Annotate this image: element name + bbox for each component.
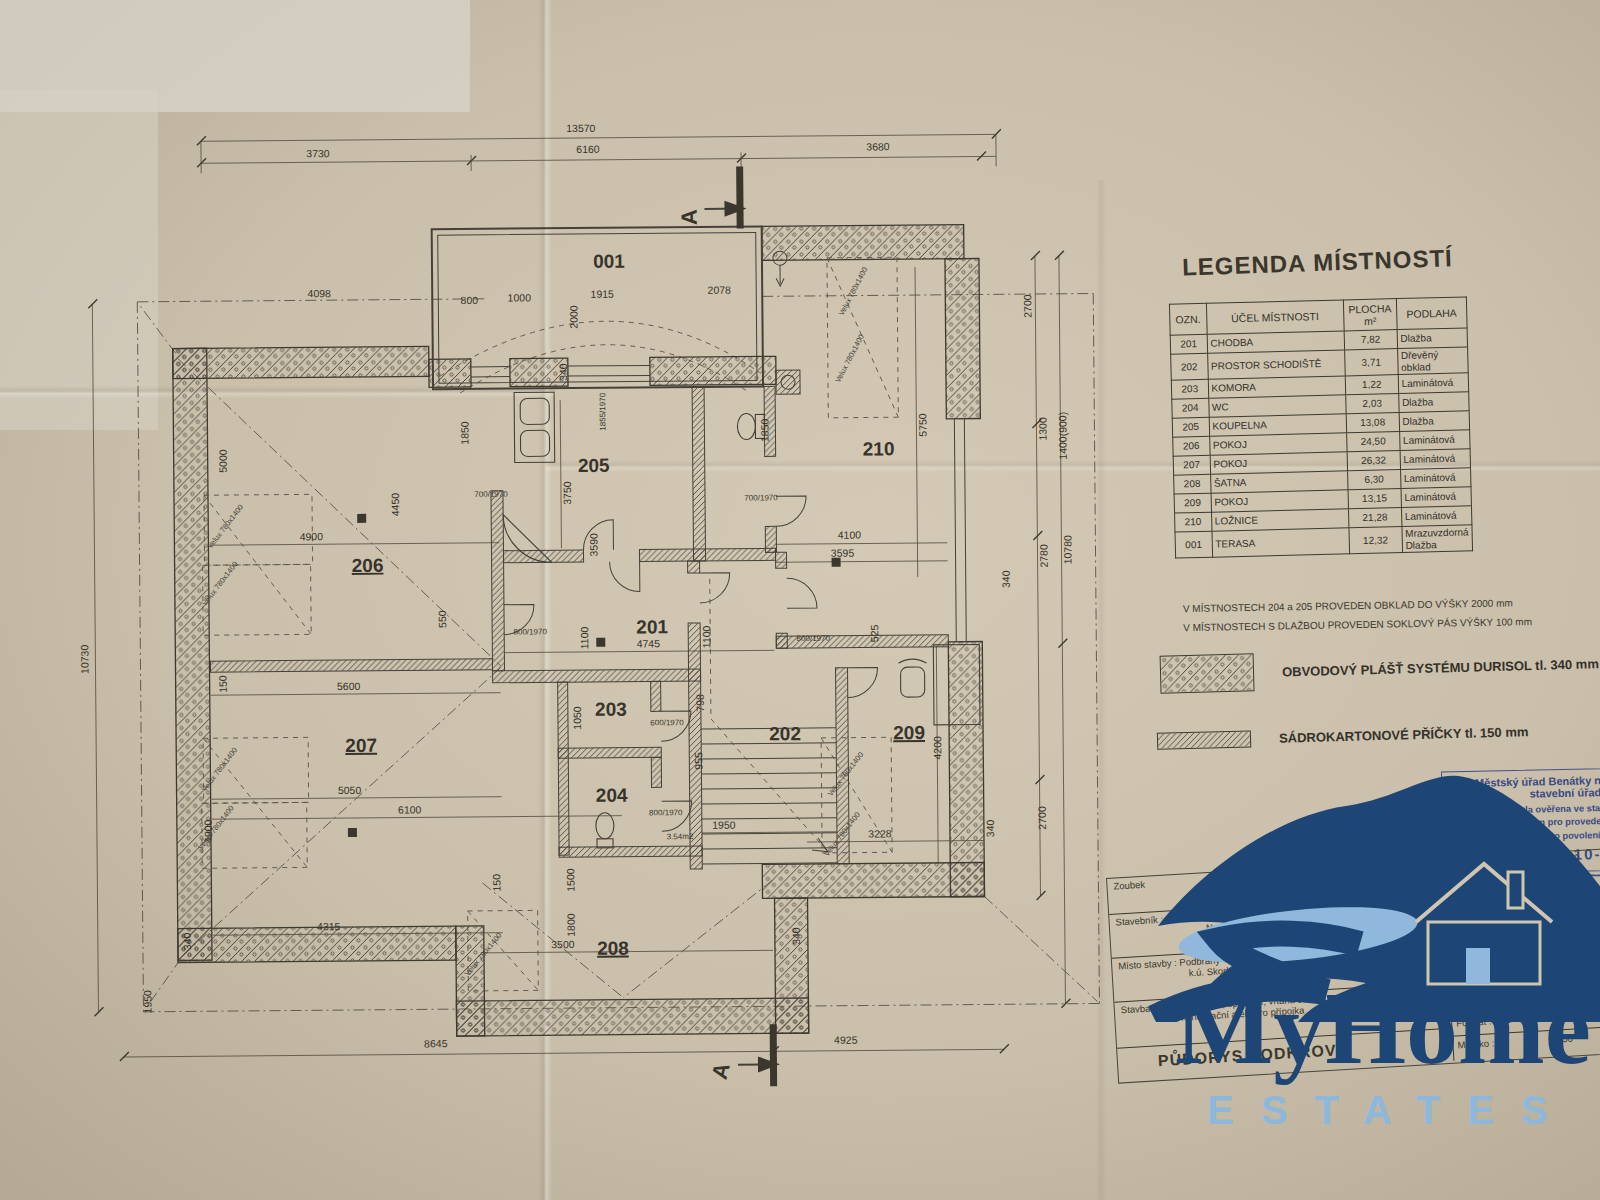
dimension-label: 800/1970 — [649, 808, 683, 817]
skylight-label: Velux 780x1400 — [833, 333, 866, 385]
dimension-label: 1500 — [564, 868, 576, 892]
dimension-label: 6100 — [398, 803, 422, 815]
dimension-label: 340 — [790, 927, 802, 945]
dimension-label: 3680 — [866, 140, 890, 152]
dimension-label: 2700 — [1021, 294, 1033, 318]
dimension-label: 550 — [436, 610, 448, 628]
datum-label: Datum : — [1455, 994, 1489, 1007]
legend-cell: 209 — [1174, 493, 1211, 513]
legend-cell: 13,15 — [1348, 489, 1401, 509]
dimension-label: 700/1970 — [744, 493, 778, 502]
legend-cell: 1,22 — [1345, 375, 1398, 395]
legend-cell: 205 — [1172, 417, 1209, 437]
skylight-label: Velux 780x1400 — [837, 266, 870, 318]
dimension-label: 3730 — [306, 147, 330, 159]
room-number-label: 203 — [595, 699, 627, 720]
chimney-icon — [776, 370, 800, 394]
dimension-label: 1050 — [571, 706, 583, 730]
legend-cell: Dlažba — [1397, 328, 1468, 349]
dimension-label: 1850 — [458, 421, 470, 445]
dimension-label: 3590 — [587, 533, 599, 557]
dimension-label: 3750 — [561, 481, 573, 505]
meritko-label: Měřítko : — [1457, 1037, 1495, 1050]
legend-cell: 13,08 — [1346, 413, 1399, 433]
format-label: Formát : — [1456, 1015, 1492, 1028]
room-number-label: 208 — [597, 938, 629, 959]
svg-text:A: A — [677, 209, 702, 225]
dimension-label: 800 — [460, 294, 478, 306]
legend-cell: Laminátová — [1399, 430, 1470, 451]
legend-cell: 206 — [1173, 436, 1210, 456]
legend-cell: 12,32 — [1349, 527, 1402, 554]
dimension-label: 2780 — [1037, 544, 1049, 568]
title-block: Zoubek Stavebník : Nad Údolím 226, Místo… — [1106, 848, 1600, 1084]
legend-cell: Laminátová — [1398, 373, 1469, 394]
dimension-label: 1100 — [578, 626, 590, 649]
hatch-legend-durisol: OBVODOVÝ PLÁŠŤ SYSTÉMU DURISOL tl. 340 m… — [1160, 644, 1600, 693]
dimension-label: 4925 — [834, 1034, 858, 1046]
dimension-label: 3595 — [831, 547, 855, 559]
legend-cell: 203 — [1171, 379, 1208, 399]
meritko-value: 1:50 — [1554, 1030, 1600, 1045]
office-addr1: Zám — [1473, 872, 1493, 884]
dimension-label: 5000 — [217, 449, 229, 473]
dimension-label: 13570 — [566, 122, 595, 134]
legend-cell: Laminátová — [1400, 449, 1471, 470]
dimension-label: 3500 — [551, 938, 575, 950]
dimension-label: 5050 — [338, 784, 362, 796]
dimension-label: 1800 — [565, 913, 577, 937]
room-number-label: 201 — [636, 616, 668, 637]
legend-cell: Dřevěný obklad — [1397, 347, 1468, 375]
finish-notes: V MÍSTNOSTECH 204 a 205 PROVEDEN OBKLAD … — [1183, 593, 1544, 637]
hatch-label: OBVODOVÝ PLÁŠŤ SYSTÉMU DURISOL tl. 340 m… — [1282, 656, 1599, 679]
room-number-label: 205 — [578, 455, 610, 476]
legend-cell: 208 — [1174, 474, 1211, 494]
legend-cell: Mrazuvzdorná Dlažba — [1402, 525, 1473, 553]
dimension-label: 4315 — [317, 920, 341, 932]
dimension-label: 5600 — [337, 680, 361, 692]
legend-table-body: 201CHODBA7,82Dlažba202PROSTOR SCHODIŠTĚ3… — [1170, 328, 1472, 558]
legend-cell: Laminátová — [1400, 468, 1471, 489]
toilet-icon — [596, 813, 614, 839]
dimension-label: 1950 — [712, 819, 736, 831]
dimension-label: 1950 — [141, 990, 153, 1014]
legend-col-plocha: PLOCHA m² — [1343, 299, 1396, 331]
dimension-label: 8645 — [424, 1037, 448, 1049]
legend-cell: 26,32 — [1347, 451, 1400, 471]
dimension-label: 4100 — [838, 529, 862, 541]
floor-plan-drawing: A A 001205210206201203204202207209208 13… — [56, 105, 1105, 1114]
legend-cell: Dlažba — [1399, 411, 1470, 432]
svg-text:A: A — [707, 1060, 735, 1082]
dimension-label: 340 — [557, 363, 569, 381]
legend-cell: 21,28 — [1348, 508, 1401, 528]
legend-col-ucel: ÚČEL MÍSTNOSTI — [1206, 300, 1344, 334]
room-number-label: 210 — [863, 438, 895, 459]
hatch-legend-partition: SÁDROKARTONOVÉ PŘÍČKY tl. 150 mm — [1157, 723, 1529, 750]
dimension-label: 1300 — [1036, 417, 1048, 441]
dimension-label: 2700 — [1036, 806, 1048, 830]
room-number-label: 207 — [345, 735, 377, 756]
format-value: A2 — [1553, 1008, 1600, 1023]
legend-cell: Dlažba — [1398, 392, 1469, 413]
paper-under-sheet — [0, 0, 470, 112]
dimension-lines — [87, 129, 1071, 1061]
room-number-label: 202 — [769, 723, 801, 744]
legend-table: OZN. ÚČEL MÍSTNOSTI PLOCHA m² PODLAHA 20… — [1169, 296, 1473, 558]
dimension-label: 4200 — [931, 736, 943, 760]
sink-icon — [520, 430, 549, 456]
legend-cell: 201 — [1170, 334, 1207, 354]
dimension-label: 4900 — [300, 530, 324, 542]
legend-cell: 6,30 — [1347, 470, 1400, 490]
dimension-label: 800/1970 — [513, 627, 547, 636]
dimension-label: 2000 — [567, 305, 579, 329]
legend-cell: Laminátová — [1401, 506, 1472, 527]
legend-title: LEGENDA MÍSTNOSTÍ — [1182, 242, 1503, 281]
dimension-label: 340 — [181, 932, 193, 950]
dimension-label: 6160 — [576, 143, 600, 155]
dimension-label: 700/1970 — [474, 490, 508, 499]
designer-name: Zoubek — [1113, 879, 1145, 892]
partition-hatch-swatch — [1157, 730, 1251, 749]
dimension-label: 150 — [490, 874, 502, 892]
dimension-label: 4745 — [637, 637, 661, 649]
dimension-label: 4450 — [389, 493, 401, 517]
dimension-label: 10780 — [1061, 535, 1073, 564]
dimension-label: 1915 — [591, 288, 615, 300]
room-number-label: 204 — [596, 785, 628, 806]
room-number-label: 209 — [893, 722, 925, 743]
section-marker-top: A — [676, 167, 747, 230]
room-number-label: 206 — [352, 555, 384, 576]
dimension-label: 340 — [1000, 570, 1012, 588]
legend-cell: 202 — [1171, 353, 1208, 380]
legend-cell: 3,71 — [1345, 349, 1398, 376]
dimension-label: 600/1970 — [650, 718, 684, 727]
legend-cell: 001 — [1175, 531, 1212, 558]
legend-cell: 204 — [1172, 398, 1209, 418]
sink-icon — [520, 398, 549, 424]
legend-col-ozn: OZN. — [1169, 303, 1206, 335]
dimension-label: 10730 — [78, 645, 90, 674]
legend-cell: 7,82 — [1344, 330, 1397, 350]
skylight-label: Velux 780x1400 — [205, 503, 245, 551]
legend-cell: 24,50 — [1347, 432, 1400, 452]
dimension-label: 3228 — [868, 827, 892, 839]
dimension-label: 3.54m2 — [667, 832, 694, 841]
office-name: ISA — [1447, 869, 1471, 886]
dimension-label: 955 — [692, 752, 704, 770]
legend-cell: PROSTOR SCHODIŠTĚ — [1207, 350, 1345, 379]
datum-value: 4/2004 — [1551, 986, 1600, 1001]
legend-cell: 210 — [1175, 512, 1212, 532]
dimension-label: 798 — [694, 694, 706, 712]
dimension-label: 150 — [217, 675, 229, 693]
dimension-label: 1400(900) — [1056, 412, 1068, 460]
legend-cell: Laminátová — [1401, 487, 1472, 508]
legend-cell: TERASA — [1212, 528, 1350, 557]
logo-subtitle: ESTATES — [1176, 1088, 1600, 1133]
dimension-label: 5750 — [916, 413, 928, 437]
dimension-label: 1100 — [700, 625, 712, 648]
chair-icon — [901, 667, 925, 697]
dimension-label: 1850 — [758, 418, 770, 442]
hatch-label: SÁDROKARTONOVÉ PŘÍČKY tl. 150 mm — [1279, 724, 1529, 746]
dimension-label: 340 — [984, 819, 996, 837]
dimension-label: 800/1970 — [797, 634, 831, 643]
dimension-label: 1855/1970 — [598, 392, 607, 430]
legend-col-podlaha: PODLAHA — [1396, 297, 1467, 330]
legend-cell: 207 — [1173, 455, 1210, 475]
legend-cell: 2,03 — [1346, 394, 1399, 414]
toilet-icon — [737, 413, 755, 439]
dimension-label: 525 — [868, 624, 880, 642]
drawing-title: PŮDORYS PODKROVÍ — [1157, 1041, 1342, 1069]
office-logo-icon — [1557, 877, 1600, 924]
dimension-label: 1000 — [508, 291, 532, 303]
dimension-label: 4098 — [307, 287, 331, 299]
durisol-hatch-swatch — [1160, 653, 1255, 693]
dimension-label: 2078 — [707, 284, 731, 296]
room-number-label: 001 — [593, 251, 625, 272]
